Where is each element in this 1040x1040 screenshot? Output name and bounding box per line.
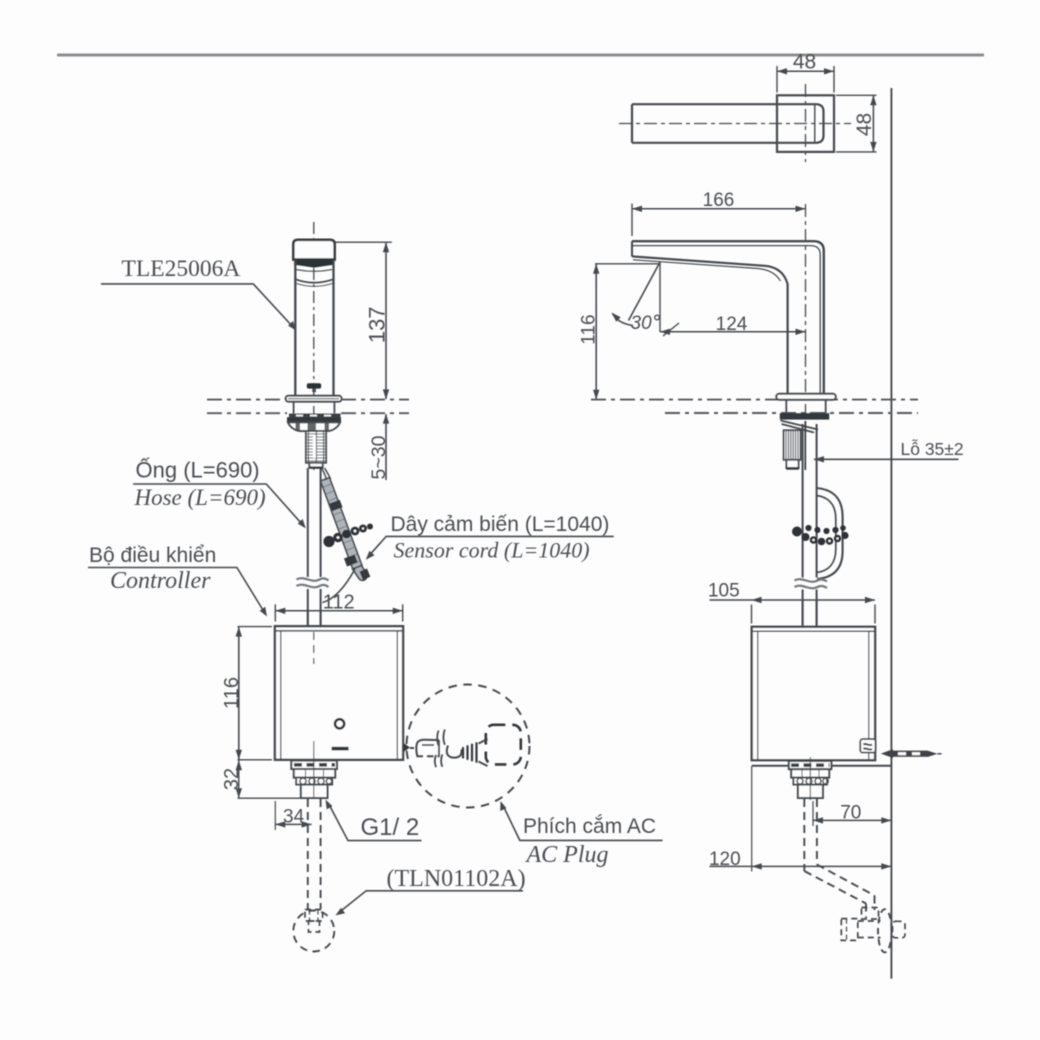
svg-text:32: 32 — [221, 768, 243, 790]
svg-text:Sensor cord (L=1040): Sensor cord (L=1040) — [394, 538, 590, 563]
svg-text:Lỗ 35±2: Lỗ 35±2 — [901, 438, 964, 459]
svg-text:Dây cảm biến (L=1040): Dây cảm biến (L=1040) — [391, 513, 610, 536]
svg-text:34: 34 — [283, 807, 305, 828]
svg-text:124: 124 — [716, 314, 748, 335]
svg-text:G1/ 2: G1/ 2 — [361, 814, 420, 841]
svg-text:105: 105 — [708, 581, 740, 602]
svg-text:AC Plug: AC Plug — [525, 842, 609, 868]
svg-text:30: 30 — [631, 313, 653, 334]
svg-text:5~30: 5~30 — [368, 435, 390, 479]
svg-text:166: 166 — [703, 190, 735, 211]
svg-text:TLE25006A: TLE25006A — [122, 256, 241, 282]
svg-text:116: 116 — [221, 677, 243, 709]
svg-text:48: 48 — [793, 51, 816, 74]
svg-text:Bộ điều khiển: Bộ điều khiển — [89, 544, 216, 567]
svg-text:Phích cắm AC: Phích cắm AC — [523, 815, 656, 838]
svg-text:Controller: Controller — [110, 568, 211, 594]
svg-text:112: 112 — [323, 592, 355, 614]
svg-text:(TLN01102A): (TLN01102A) — [387, 866, 526, 892]
svg-text:48: 48 — [853, 113, 876, 136]
svg-text:137: 137 — [365, 306, 390, 343]
svg-text:Hose (L=690): Hose (L=690) — [134, 485, 266, 510]
svg-text:120: 120 — [709, 849, 741, 870]
svg-text:116: 116 — [579, 314, 600, 344]
svg-text:70: 70 — [840, 803, 861, 824]
svg-text:Ống (L=690): Ống (L=690) — [136, 457, 260, 483]
